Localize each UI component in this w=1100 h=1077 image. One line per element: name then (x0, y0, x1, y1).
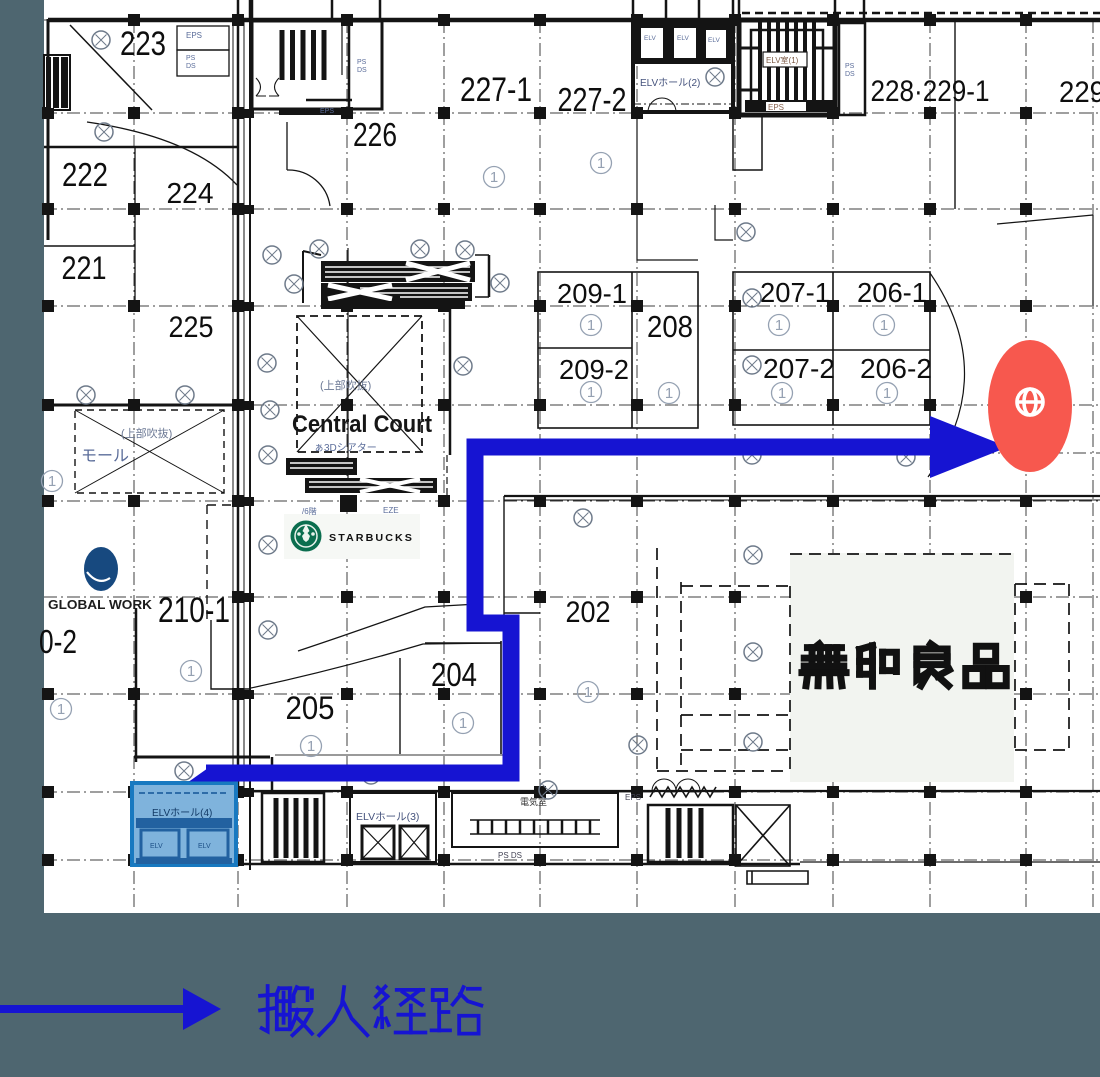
svg-text:1: 1 (883, 385, 891, 402)
svg-text:208: 208 (647, 309, 693, 344)
svg-text:204: 204 (431, 656, 477, 693)
svg-text:1: 1 (880, 317, 888, 334)
svg-text:1: 1 (307, 738, 315, 755)
svg-text:226: 226 (353, 116, 397, 153)
svg-text:EZE: EZE (383, 506, 399, 515)
svg-text:ELVホール(2): ELVホール(2) (640, 77, 700, 89)
svg-text:ぁ3Dシアター: ぁ3Dシアター (314, 442, 377, 454)
svg-text:DS: DS (186, 63, 196, 70)
svg-text:225: 225 (169, 311, 214, 344)
svg-text:205: 205 (286, 690, 335, 726)
svg-text:207-1: 207-1 (760, 277, 830, 308)
svg-text:1: 1 (597, 155, 605, 172)
svg-text:1: 1 (587, 317, 595, 334)
svg-text:227-2: 227-2 (558, 81, 627, 118)
svg-text:PS DS: PS DS (498, 851, 522, 860)
svg-text:ELV: ELV (150, 843, 163, 850)
svg-text:ELVホール(4): ELVホール(4) (152, 807, 212, 819)
svg-text:1: 1 (57, 701, 65, 718)
svg-text:DS: DS (357, 67, 367, 74)
svg-text:209-1: 209-1 (557, 278, 627, 309)
svg-text:1: 1 (187, 663, 195, 680)
svg-text:229: 229 (1059, 76, 1100, 109)
svg-text:ELV: ELV (708, 37, 720, 44)
svg-text:ELV: ELV (677, 35, 689, 42)
svg-text:ELVホール(3): ELVホール(3) (356, 811, 419, 823)
svg-text:モール: モール (81, 448, 129, 465)
svg-text:228·229-1: 228·229-1 (871, 75, 990, 108)
svg-text:223: 223 (120, 25, 166, 63)
svg-text:210-1: 210-1 (158, 591, 230, 630)
svg-text:1: 1 (459, 715, 467, 732)
svg-text:0-2: 0-2 (39, 623, 77, 660)
svg-text:PS: PS (845, 63, 855, 70)
svg-text:ELV: ELV (644, 35, 656, 42)
svg-text:/6階: /6階 (302, 506, 317, 516)
svg-text:(上部吹抜): (上部吹抜) (121, 426, 172, 440)
svg-text:221: 221 (62, 250, 107, 286)
svg-text:Central Court: Central Court (292, 411, 432, 438)
svg-text:206-2: 206-2 (860, 353, 932, 384)
svg-text:227-1: 227-1 (460, 71, 532, 109)
svg-text:1: 1 (587, 384, 595, 401)
svg-text:202: 202 (566, 596, 611, 629)
svg-text:207-2: 207-2 (763, 353, 835, 384)
svg-text:ELV: ELV (198, 843, 211, 850)
svg-text:EPS: EPS (625, 793, 641, 802)
svg-text:PS: PS (357, 59, 367, 66)
svg-text:STARBUCKS: STARBUCKS (329, 532, 414, 544)
svg-text:EPS: EPS (320, 108, 334, 115)
svg-text:PS: PS (186, 55, 196, 62)
svg-text:1: 1 (48, 473, 56, 490)
svg-text:222: 222 (62, 156, 108, 193)
svg-text:224: 224 (167, 178, 214, 210)
svg-text:EPS: EPS (768, 103, 784, 112)
svg-text:DS: DS (845, 71, 855, 78)
svg-text:1: 1 (584, 684, 592, 701)
svg-text:ELV室(1): ELV室(1) (766, 55, 799, 65)
svg-text:(上部吹抜): (上部吹抜) (320, 378, 371, 392)
svg-text:209-2: 209-2 (559, 354, 629, 385)
svg-text:EPS: EPS (186, 31, 202, 40)
svg-text:1: 1 (665, 385, 673, 402)
svg-text:206-1: 206-1 (857, 277, 927, 308)
svg-text:1: 1 (490, 169, 498, 186)
svg-text:1: 1 (775, 317, 783, 334)
svg-text:1: 1 (778, 385, 786, 402)
